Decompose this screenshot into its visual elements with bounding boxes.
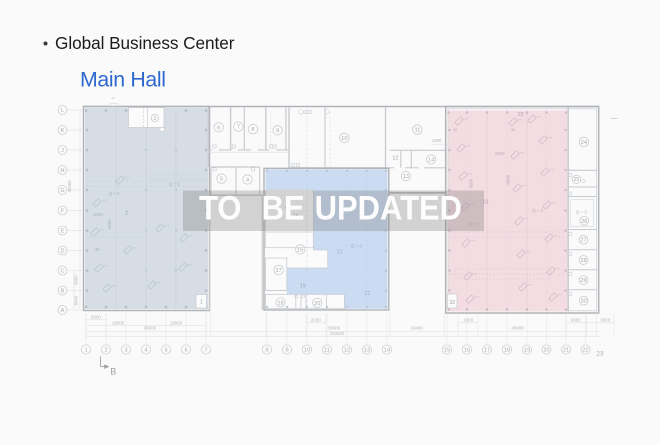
svg-text:15: 15 bbox=[297, 247, 303, 253]
svg-text:16: 16 bbox=[464, 348, 470, 354]
svg-text:9: 9 bbox=[276, 128, 279, 134]
svg-text:6: 6 bbox=[184, 348, 187, 354]
svg-text:B: B bbox=[110, 367, 116, 377]
svg-text:1000: 1000 bbox=[463, 318, 473, 323]
svg-text:3000: 3000 bbox=[600, 318, 610, 323]
svg-text:6000: 6000 bbox=[469, 178, 474, 188]
svg-text:29: 29 bbox=[580, 278, 586, 284]
svg-text:18000: 18000 bbox=[112, 320, 125, 325]
svg-text:19: 19 bbox=[524, 348, 530, 354]
svg-text:1: 1 bbox=[200, 299, 203, 305]
svg-text:13: 13 bbox=[403, 174, 409, 180]
svg-text:18400: 18400 bbox=[411, 326, 424, 331]
svg-text:A: A bbox=[61, 308, 65, 314]
svg-text:4: 4 bbox=[144, 348, 147, 354]
svg-text:28: 28 bbox=[580, 258, 586, 264]
svg-text:36000: 36000 bbox=[144, 326, 157, 331]
svg-text:12: 12 bbox=[392, 155, 398, 161]
svg-text:Main Hall: Main Hall bbox=[80, 67, 166, 91]
svg-text:5000: 5000 bbox=[107, 219, 112, 229]
svg-text:18000: 18000 bbox=[170, 320, 183, 325]
svg-text:15: 15 bbox=[444, 348, 450, 354]
svg-text:6000: 6000 bbox=[506, 174, 511, 184]
svg-text:19: 19 bbox=[300, 283, 306, 289]
svg-text:45000: 45000 bbox=[511, 326, 524, 331]
svg-text:20: 20 bbox=[314, 301, 320, 307]
svg-text:Q + 3: Q + 3 bbox=[169, 182, 180, 187]
svg-text:21: 21 bbox=[563, 348, 569, 354]
svg-text:153600: 153600 bbox=[330, 331, 345, 336]
svg-text:17: 17 bbox=[275, 268, 281, 274]
svg-text:3: 3 bbox=[153, 116, 156, 122]
svg-text:K: K bbox=[61, 128, 65, 134]
svg-text:1: 1 bbox=[84, 348, 87, 354]
svg-text:9: 9 bbox=[285, 348, 288, 354]
svg-text:20: 20 bbox=[543, 348, 549, 354]
svg-text:1000: 1000 bbox=[495, 151, 505, 156]
svg-text:14: 14 bbox=[384, 348, 390, 354]
svg-text:32: 32 bbox=[450, 300, 456, 306]
svg-text:2: 2 bbox=[125, 211, 128, 217]
svg-text:F: F bbox=[61, 209, 65, 215]
svg-text:2: 2 bbox=[104, 348, 107, 354]
svg-text:3: 3 bbox=[124, 348, 127, 354]
svg-text:6000: 6000 bbox=[571, 318, 581, 323]
svg-text:24: 24 bbox=[581, 140, 587, 146]
svg-text:10: 10 bbox=[304, 348, 310, 354]
svg-text:8: 8 bbox=[251, 127, 254, 133]
svg-text:B: B bbox=[61, 289, 65, 295]
svg-text:D: D bbox=[60, 249, 64, 255]
svg-text:G: G bbox=[60, 188, 64, 194]
svg-text:22: 22 bbox=[582, 348, 588, 354]
svg-text:27: 27 bbox=[580, 238, 586, 244]
svg-text:7: 7 bbox=[237, 125, 240, 131]
svg-text:6000: 6000 bbox=[74, 275, 79, 285]
svg-text:23: 23 bbox=[518, 112, 524, 118]
svg-text:2000: 2000 bbox=[93, 212, 103, 217]
svg-text:Q = 3: Q = 3 bbox=[351, 243, 362, 248]
svg-text:Q + 3: Q + 3 bbox=[109, 191, 120, 196]
svg-text:J: J bbox=[61, 148, 64, 154]
svg-text:4: 4 bbox=[246, 178, 249, 184]
svg-text:5: 5 bbox=[220, 177, 223, 183]
svg-text:11: 11 bbox=[414, 128, 420, 134]
svg-text:7: 7 bbox=[204, 348, 207, 354]
svg-text:11: 11 bbox=[324, 348, 330, 354]
svg-text:25: 25 bbox=[574, 177, 580, 183]
svg-text:45: 45 bbox=[95, 247, 100, 252]
svg-text:13: 13 bbox=[364, 348, 370, 354]
svg-text:8: 8 bbox=[265, 348, 268, 354]
svg-text:12: 12 bbox=[344, 348, 350, 354]
svg-text:22: 22 bbox=[364, 291, 370, 297]
svg-text:6: 6 bbox=[217, 125, 220, 131]
svg-text:14: 14 bbox=[428, 158, 434, 164]
svg-text:Q = 3: Q = 3 bbox=[532, 208, 543, 213]
svg-text:Q = 3: Q = 3 bbox=[576, 209, 587, 214]
svg-text:H: H bbox=[60, 168, 64, 174]
svg-text:30: 30 bbox=[581, 299, 587, 305]
svg-text:L: L bbox=[61, 108, 64, 114]
svg-text:26: 26 bbox=[581, 219, 587, 225]
svg-text:18: 18 bbox=[277, 300, 283, 306]
svg-text:45: 45 bbox=[453, 127, 458, 132]
svg-text:2000: 2000 bbox=[311, 318, 321, 323]
svg-text:C: C bbox=[60, 269, 64, 275]
svg-text:Global Business Center: Global Business Center bbox=[55, 33, 235, 53]
svg-text:45: 45 bbox=[511, 127, 516, 132]
svg-text:40000: 40000 bbox=[67, 180, 72, 193]
svg-text:21: 21 bbox=[337, 250, 343, 256]
svg-text:TO BE UPDATED: TO BE UPDATED bbox=[199, 189, 462, 227]
svg-text:23: 23 bbox=[597, 351, 604, 358]
svg-text:17: 17 bbox=[484, 348, 490, 354]
svg-text:E: E bbox=[61, 229, 65, 235]
svg-text:18: 18 bbox=[504, 348, 510, 354]
svg-text:6000: 6000 bbox=[74, 295, 79, 305]
svg-text:5: 5 bbox=[164, 348, 167, 354]
svg-text:6000: 6000 bbox=[91, 314, 101, 319]
svg-text:1000: 1000 bbox=[432, 138, 442, 143]
svg-text:10: 10 bbox=[341, 136, 347, 142]
